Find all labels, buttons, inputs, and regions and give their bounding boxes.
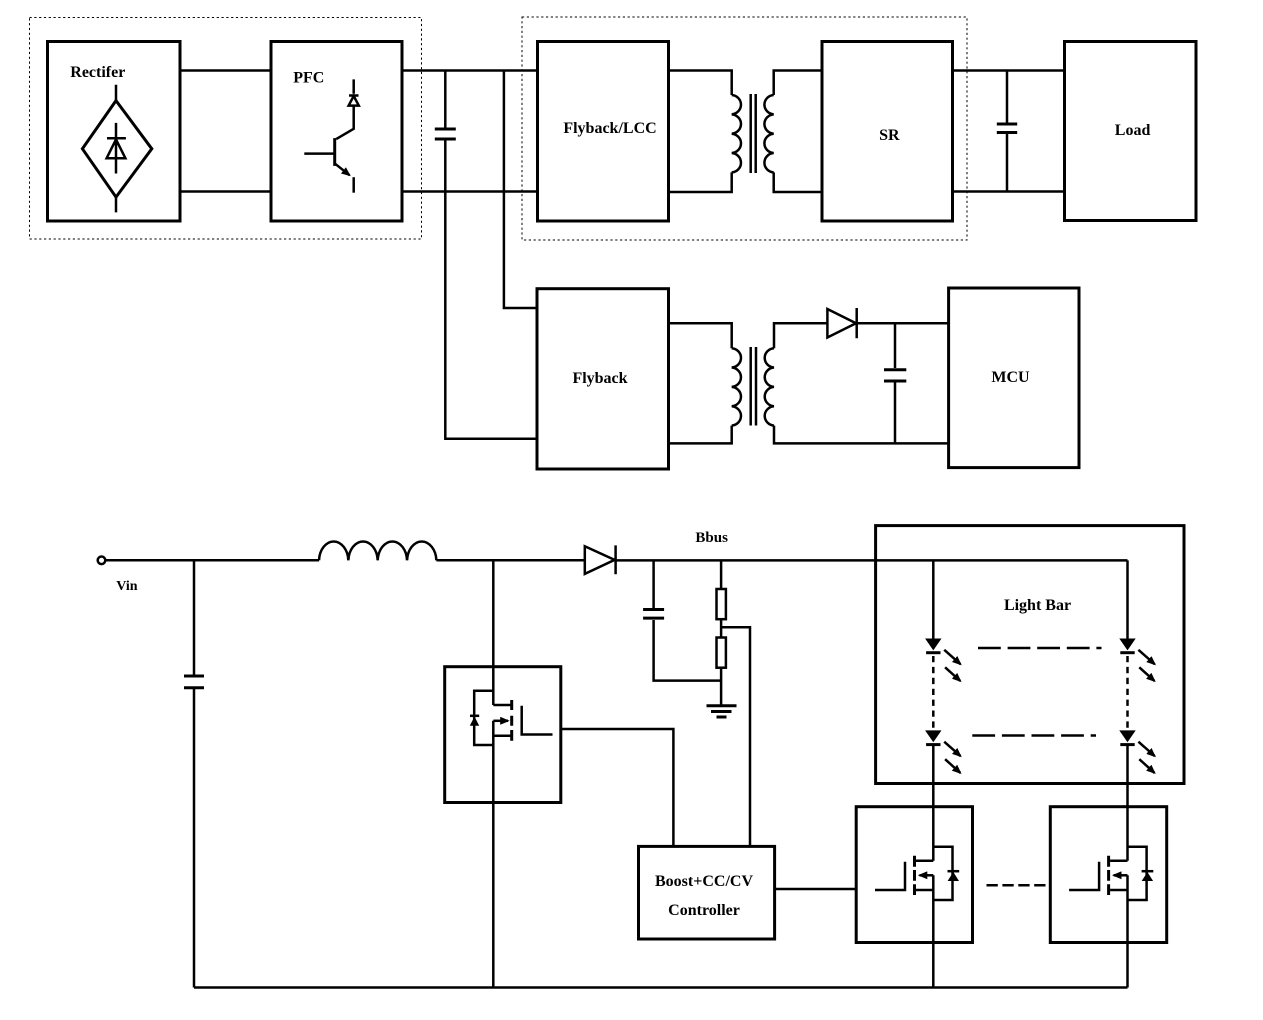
svg-text:Light Bar: Light Bar bbox=[1004, 597, 1071, 614]
svg-text:Load: Load bbox=[1115, 122, 1151, 139]
svg-text:Flyback/LCC: Flyback/LCC bbox=[563, 120, 656, 137]
svg-text:Boost+CC/CV: Boost+CC/CV bbox=[655, 873, 753, 890]
svg-text:Rectifer: Rectifer bbox=[70, 64, 125, 81]
svg-text:Flyback: Flyback bbox=[572, 370, 627, 387]
svg-text:Bbus: Bbus bbox=[695, 530, 728, 546]
svg-text:SR: SR bbox=[879, 127, 900, 144]
svg-text:PFC: PFC bbox=[293, 69, 324, 86]
svg-text:MCU: MCU bbox=[991, 369, 1030, 386]
svg-text:Controller: Controller bbox=[668, 902, 740, 919]
svg-text:Vin: Vin bbox=[116, 579, 137, 594]
